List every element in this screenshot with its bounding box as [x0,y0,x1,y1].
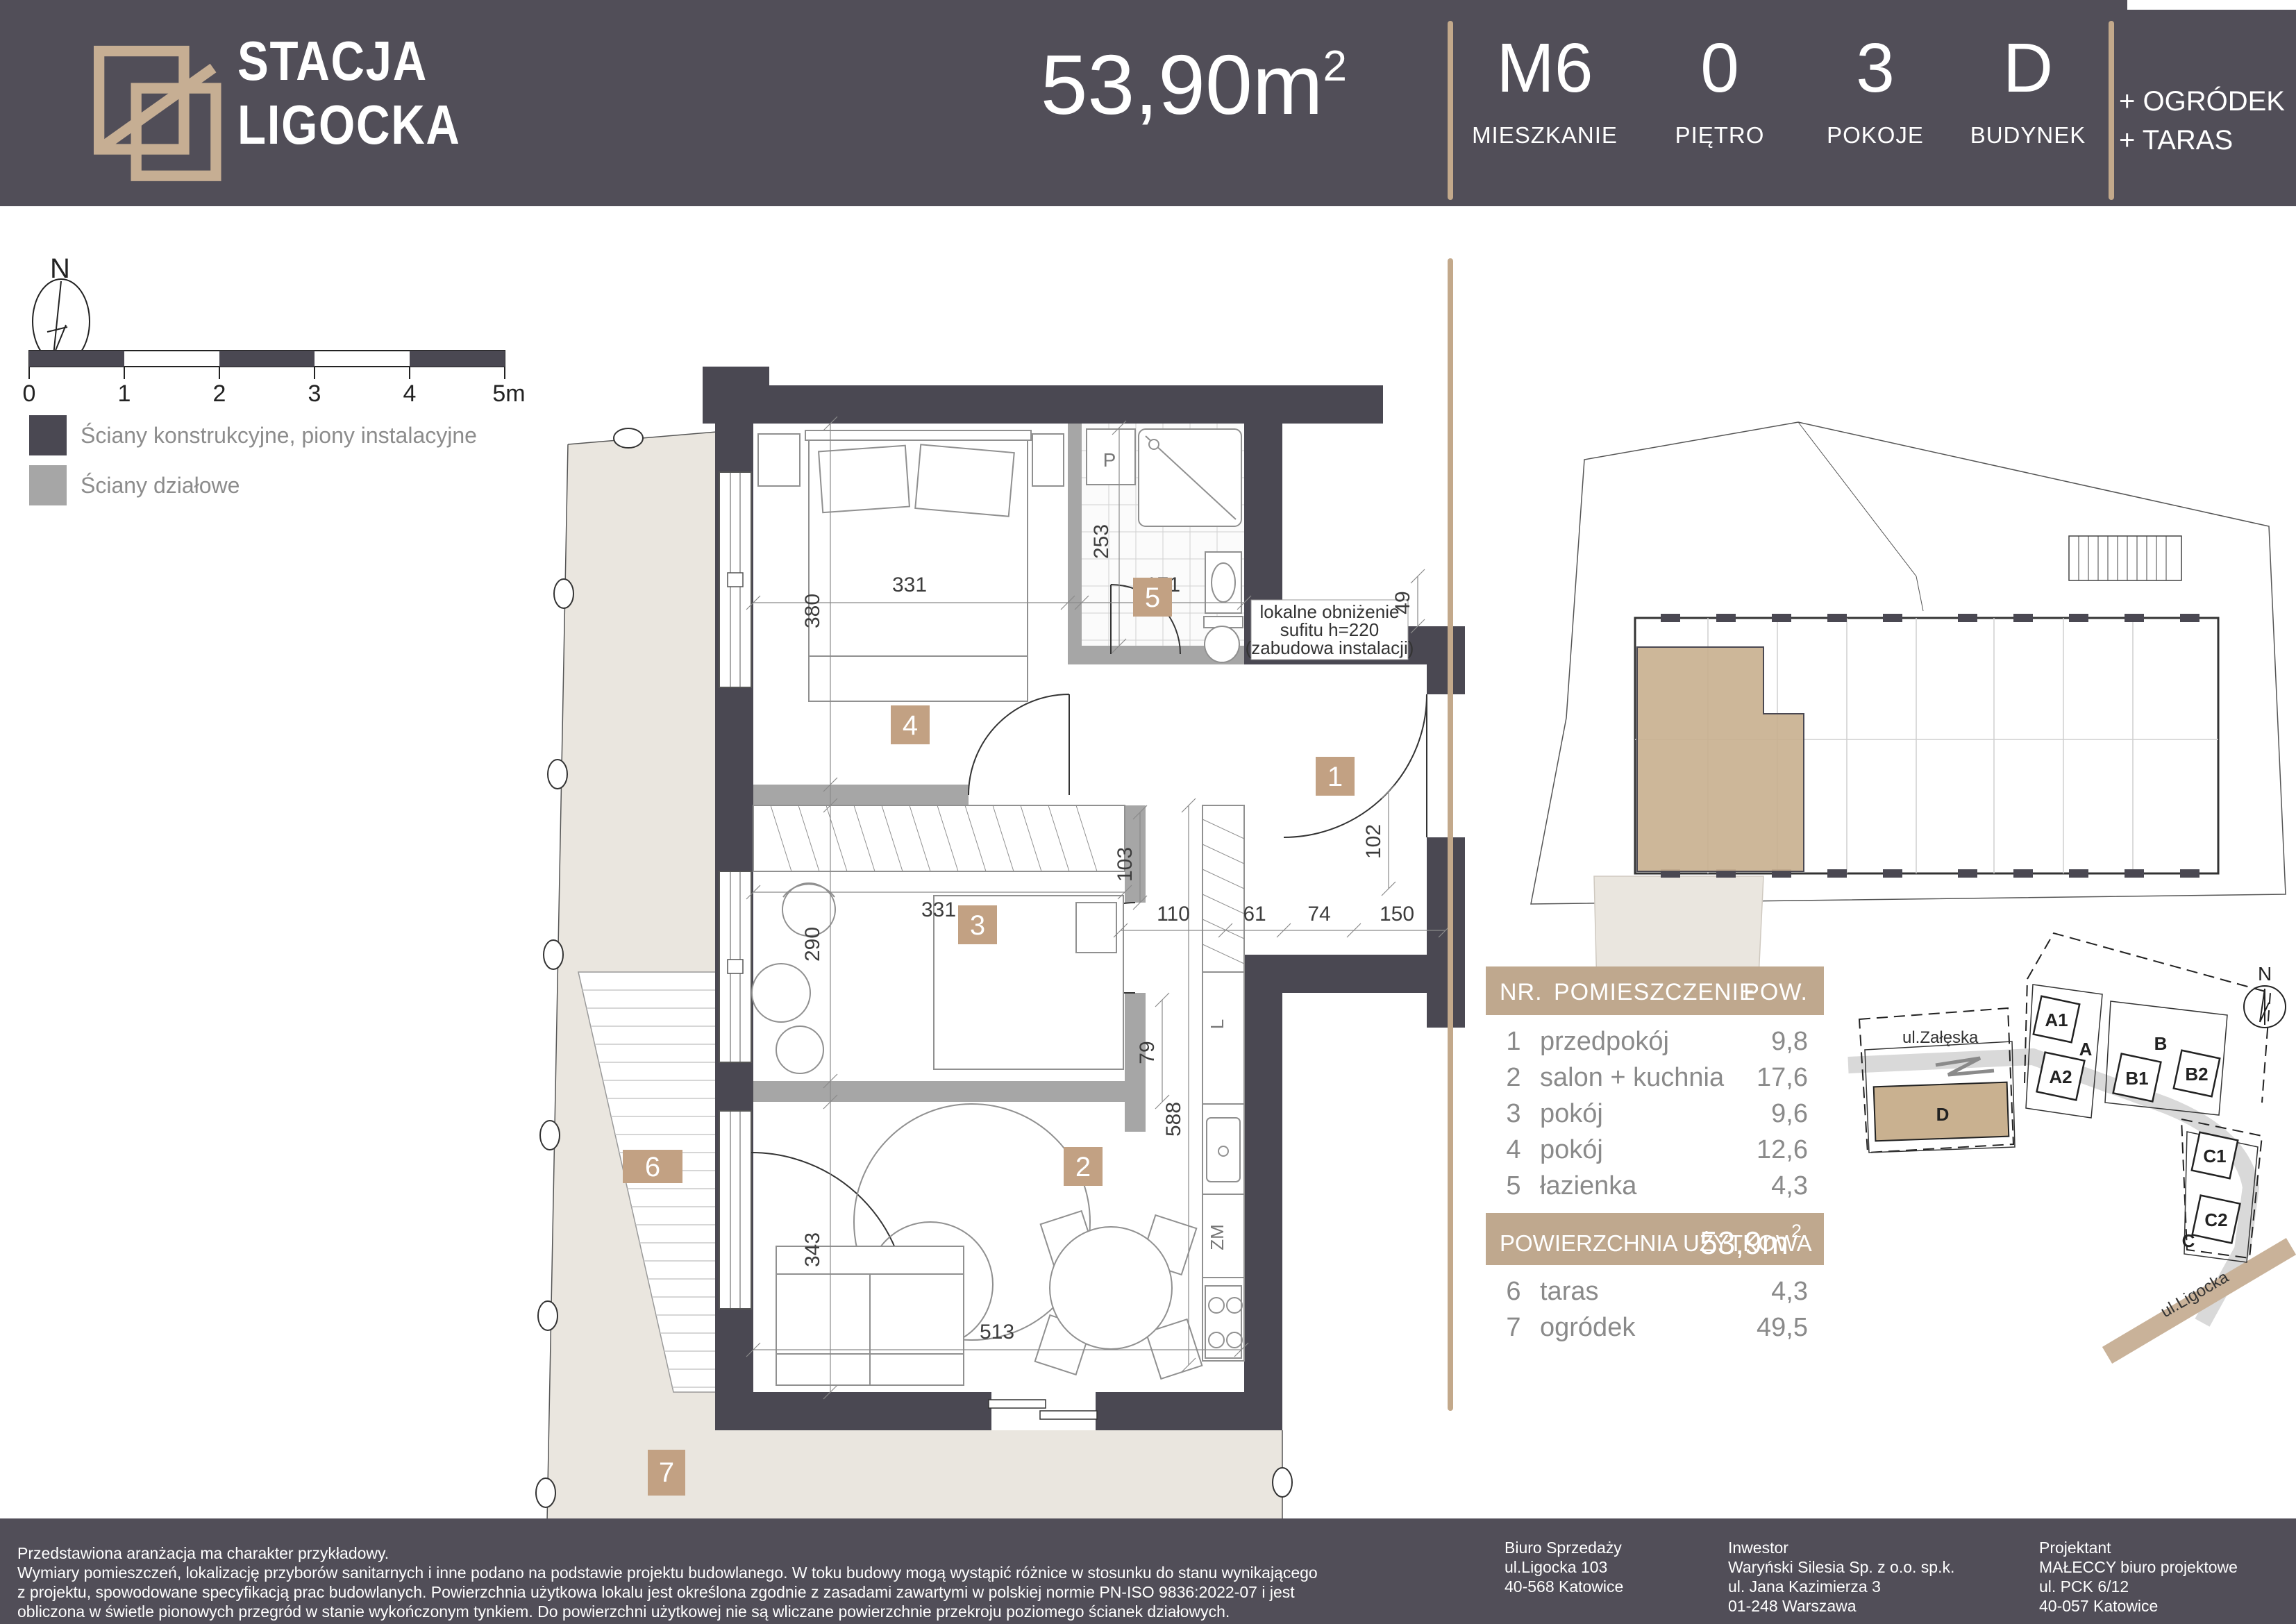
dim-kitchen-height: 588 [1162,1102,1185,1137]
disclaimer-line3: z projektu, spowodowane specyfikacją pra… [17,1582,1318,1602]
legend-swatch-partition [29,465,67,505]
badge-room5-num: 5 [1145,583,1160,613]
investor-line2: ul. Jana Kazimierza 3 [1728,1577,1954,1596]
brand-line1: STACJA [237,29,461,93]
stat-pokoje-label: POKOJE [1795,122,1955,149]
stat-mieszkanie-label: MIESZKANIE [1465,122,1625,149]
row5-no: 5 [1506,1171,1520,1200]
shower [1139,429,1241,526]
dim-hall-c: 74 [1307,903,1330,926]
brand-logo-icon [49,14,229,194]
legend-label-partition: Ściany działowe [81,473,240,498]
dining-set [1035,1211,1203,1379]
site-label-a1: A1 [2045,1010,2068,1030]
badge-room4-num: 4 [903,710,918,741]
extras-taras: + TARAS [2119,121,2285,160]
footer-bar: Przedstawiona aranżacja ma charakter prz… [0,1518,2296,1624]
stat-mieszkanie: M6 MIESZKANIE [1465,33,1625,149]
header-divider-right [2109,21,2114,200]
scale-tick-3: 3 [308,380,321,407]
row2-name: salon + kuchnia [1540,1063,1725,1092]
header-bar: STACJA LIGOCKA 53,90m2 M6 MIESZKANIE 0 P… [0,0,2296,206]
entry-door-arc [1284,694,1427,837]
room3-wardrobe [753,805,1125,871]
dim-salon-width: 513 [980,1321,1014,1343]
dim-room4-width: 331 [892,574,927,596]
row7-no: 7 [1506,1313,1520,1342]
investor-line1: Waryński Silesia Sp. z o.o. sp.k. [1728,1557,1954,1577]
designer-title: Projektant [2039,1538,2238,1557]
washer-label: P [1103,449,1116,471]
overview-stairs [2069,536,2181,580]
stat-budynek-label: BUDYNEK [1948,122,2108,149]
row7-name: ogródek [1540,1313,1636,1342]
legend-swatch-structural [29,415,67,455]
dim-shaft: 49 [1391,591,1414,614]
stove [1205,1286,1242,1358]
row7-area: 49,5 [1757,1313,1808,1342]
site-label-c1: C1 [2203,1146,2226,1166]
table-col-nr: NR. [1500,979,1543,1005]
scale-tick-0: 0 [23,380,36,407]
site-label-b1: B1 [2125,1068,2148,1089]
row6-no: 6 [1506,1277,1520,1306]
garden-sliding-door [989,1392,1097,1430]
panel-divider [1448,258,1453,1411]
floor-plan: lokalne obniżenie sufitu h=220 (zabudowa… [536,367,1465,1518]
row1-name: przedpokój [1540,1027,1669,1056]
kitchen-sink [1207,1118,1240,1182]
designer-line3: 40-057 Katowice [2039,1596,2238,1616]
wall-legend: Ściany konstrukcyjne, piony instalacyjne… [29,415,477,505]
badge-room6-num: 6 [645,1152,660,1182]
badge-room2-num: 2 [1075,1152,1091,1182]
fridge-label: L [1207,1019,1227,1029]
investor-title: Inwestor [1728,1538,1954,1557]
row3-no: 3 [1506,1099,1520,1128]
dim-entry-height: 102 [1362,824,1385,859]
dim-entry-door: 150 [1380,903,1414,926]
disclaimer-line1: Przedstawiona aranżacja ma charakter prz… [17,1543,1318,1563]
table-col-pow: POW. [1743,979,1808,1005]
brand-name: STACJA LIGOCKA [237,29,461,157]
window-room3 [719,871,751,1062]
stat-pietro-value: 0 [1640,33,1800,103]
row1-area: 9,8 [1771,1027,1808,1056]
row5-area: 4,3 [1771,1171,1808,1200]
table-rows: 1 przedpokój 9,8 2 salon + kuchnia 17,6 … [1506,1027,1808,1200]
dim-bath-height: 253 [1090,524,1113,559]
scale-tick-2: 2 [213,380,226,407]
sales-office-line2: 40-568 Katowice [1505,1577,1623,1596]
row5-name: łazienka [1540,1171,1637,1200]
row4-name: pokój [1540,1135,1603,1164]
row1-no: 1 [1506,1027,1520,1056]
header-divider-left [1448,21,1453,200]
table-col-room: POMIESZCZENIE [1554,979,1756,1005]
site-label-b: B [2154,1033,2168,1054]
site-label-c: C [2182,1230,2195,1251]
site-label-c2: C2 [2204,1209,2227,1230]
dim-salon-height: 343 [801,1232,824,1267]
row2-no: 2 [1506,1063,1520,1092]
kitchen-counter [1203,805,1244,1361]
designer-line1: MAŁECCY biuro projektowe [2039,1557,2238,1577]
washbasin [1205,552,1241,613]
disclaimer-line4: obliczona w świetle pionowych przegród w… [17,1602,1318,1621]
scale-tick-1: 1 [118,380,131,407]
stat-budynek-value: D [1948,33,2108,103]
ceiling-note-line3: (zabudowa instalacji) [1246,637,1414,658]
row4-no: 4 [1506,1135,1520,1164]
room4-door-arc [969,694,1069,795]
dim-room4-height: 380 [801,594,824,628]
sales-office-line1: ul.Ligocka 103 [1505,1557,1623,1577]
footer-sales-office: Biuro Sprzedaży ul.Ligocka 103 40-568 Ka… [1505,1538,1623,1596]
ceiling-note: lokalne obniżenie sufitu h=220 (zabudowa… [1246,600,1414,660]
stat-pietro: 0 PIĘTRO [1640,33,1800,149]
dim-hall-b: 61 [1243,903,1266,926]
footer-designer: Projektant MAŁECCY biuro projektowe ul. … [2039,1538,2238,1616]
row6-area: 4,3 [1771,1277,1808,1306]
dim-room3-height: 290 [801,927,824,962]
table-total-value: 53,9m [1700,1225,1788,1261]
apartment-area: 53,90m2 [868,36,1347,133]
row3-name: pokój [1540,1099,1603,1128]
north-compass: N [33,253,90,364]
scale-tick-5m: 5m [492,380,525,407]
site-compass: N [2244,963,2286,1028]
table-outdoor-rows: 6 taras 4,3 7 ogródek 49,5 [1506,1277,1808,1342]
table-total-sup: 2 [1791,1221,1802,1241]
dim-hall-height: 103 [1114,847,1137,882]
building-overview [1531,422,2286,991]
brand-line2: LIGOCKA [237,93,461,157]
site-street-zaleska: ul.Załęska [1902,1028,1979,1047]
stat-pokoje-value: 3 [1795,33,1955,103]
row6-name: taras [1540,1277,1598,1306]
stat-pokoje: 3 POKOJE [1795,33,1955,149]
extras-ogrodek: + OGRÓDEK [2119,82,2285,121]
compass-needle [47,281,67,355]
site-label-a2: A2 [2049,1066,2072,1087]
site-compass-n: N [2258,963,2272,985]
site-label-d: D [1936,1104,1950,1125]
site-plan: A1 A2 A B1 B2 B C1 C2 C D ul.Załęska ul.… [1848,933,2291,1355]
badge-room3-num: 3 [970,910,985,941]
stat-mieszkanie-value: M6 [1465,33,1625,103]
top-right-notch [2127,0,2296,10]
dim-wardrobe: 331 [921,898,956,921]
row4-area: 12,6 [1757,1135,1808,1164]
badge-room1-num: 1 [1327,762,1343,792]
dim-hall-a: 110 [1157,903,1190,926]
footer-investor: Inwestor Waryński Silesia Sp. z o.o. sp.… [1728,1538,1954,1616]
area-superscript: 2 [1323,42,1347,90]
dishwasher-label: ZM [1207,1224,1227,1250]
site-label-b2: B2 [2185,1064,2208,1085]
sales-office-title: Biuro Sprzedaży [1505,1538,1623,1557]
room-table: NR. POMIESZCZENIE POW. 1 przedpokój 9,8 … [1486,966,1824,1342]
badge-room7-num: 7 [659,1457,674,1488]
scale-bar: 0 1 2 3 4 5m [23,351,526,407]
dim-corridor: 79 [1136,1041,1159,1064]
overview-path [1798,422,1923,611]
designer-line2: ul. PCK 6/12 [2039,1577,2238,1596]
footer-disclaimer: Przedstawiona aranżacja ma charakter prz… [17,1543,1318,1621]
plan-sheet: N 0 1 2 3 4 5m Ściany konstrukcyjne, pio… [0,206,2296,1518]
row2-area: 17,6 [1757,1063,1808,1092]
row3-area: 9,6 [1771,1099,1808,1128]
room4-furniture [758,430,1064,701]
scale-tick-4: 4 [403,380,417,407]
disclaimer-line2: Wymiary pomieszczeń, lokalizację przybor… [17,1563,1318,1582]
extras-block: + OGRÓDEK + TARAS [2119,82,2285,160]
window-room4 [719,472,751,687]
investor-line3: 01-248 Warszawa [1728,1596,1954,1616]
stat-pietro-label: PIĘTRO [1640,122,1800,149]
site-label-a: A [2079,1039,2093,1060]
legend-label-structural: Ściany konstrukcyjne, piony instalacyjne [81,423,477,448]
area-value: 53,90m [1041,37,1323,132]
stat-budynek: D BUDYNEK [1948,33,2108,149]
